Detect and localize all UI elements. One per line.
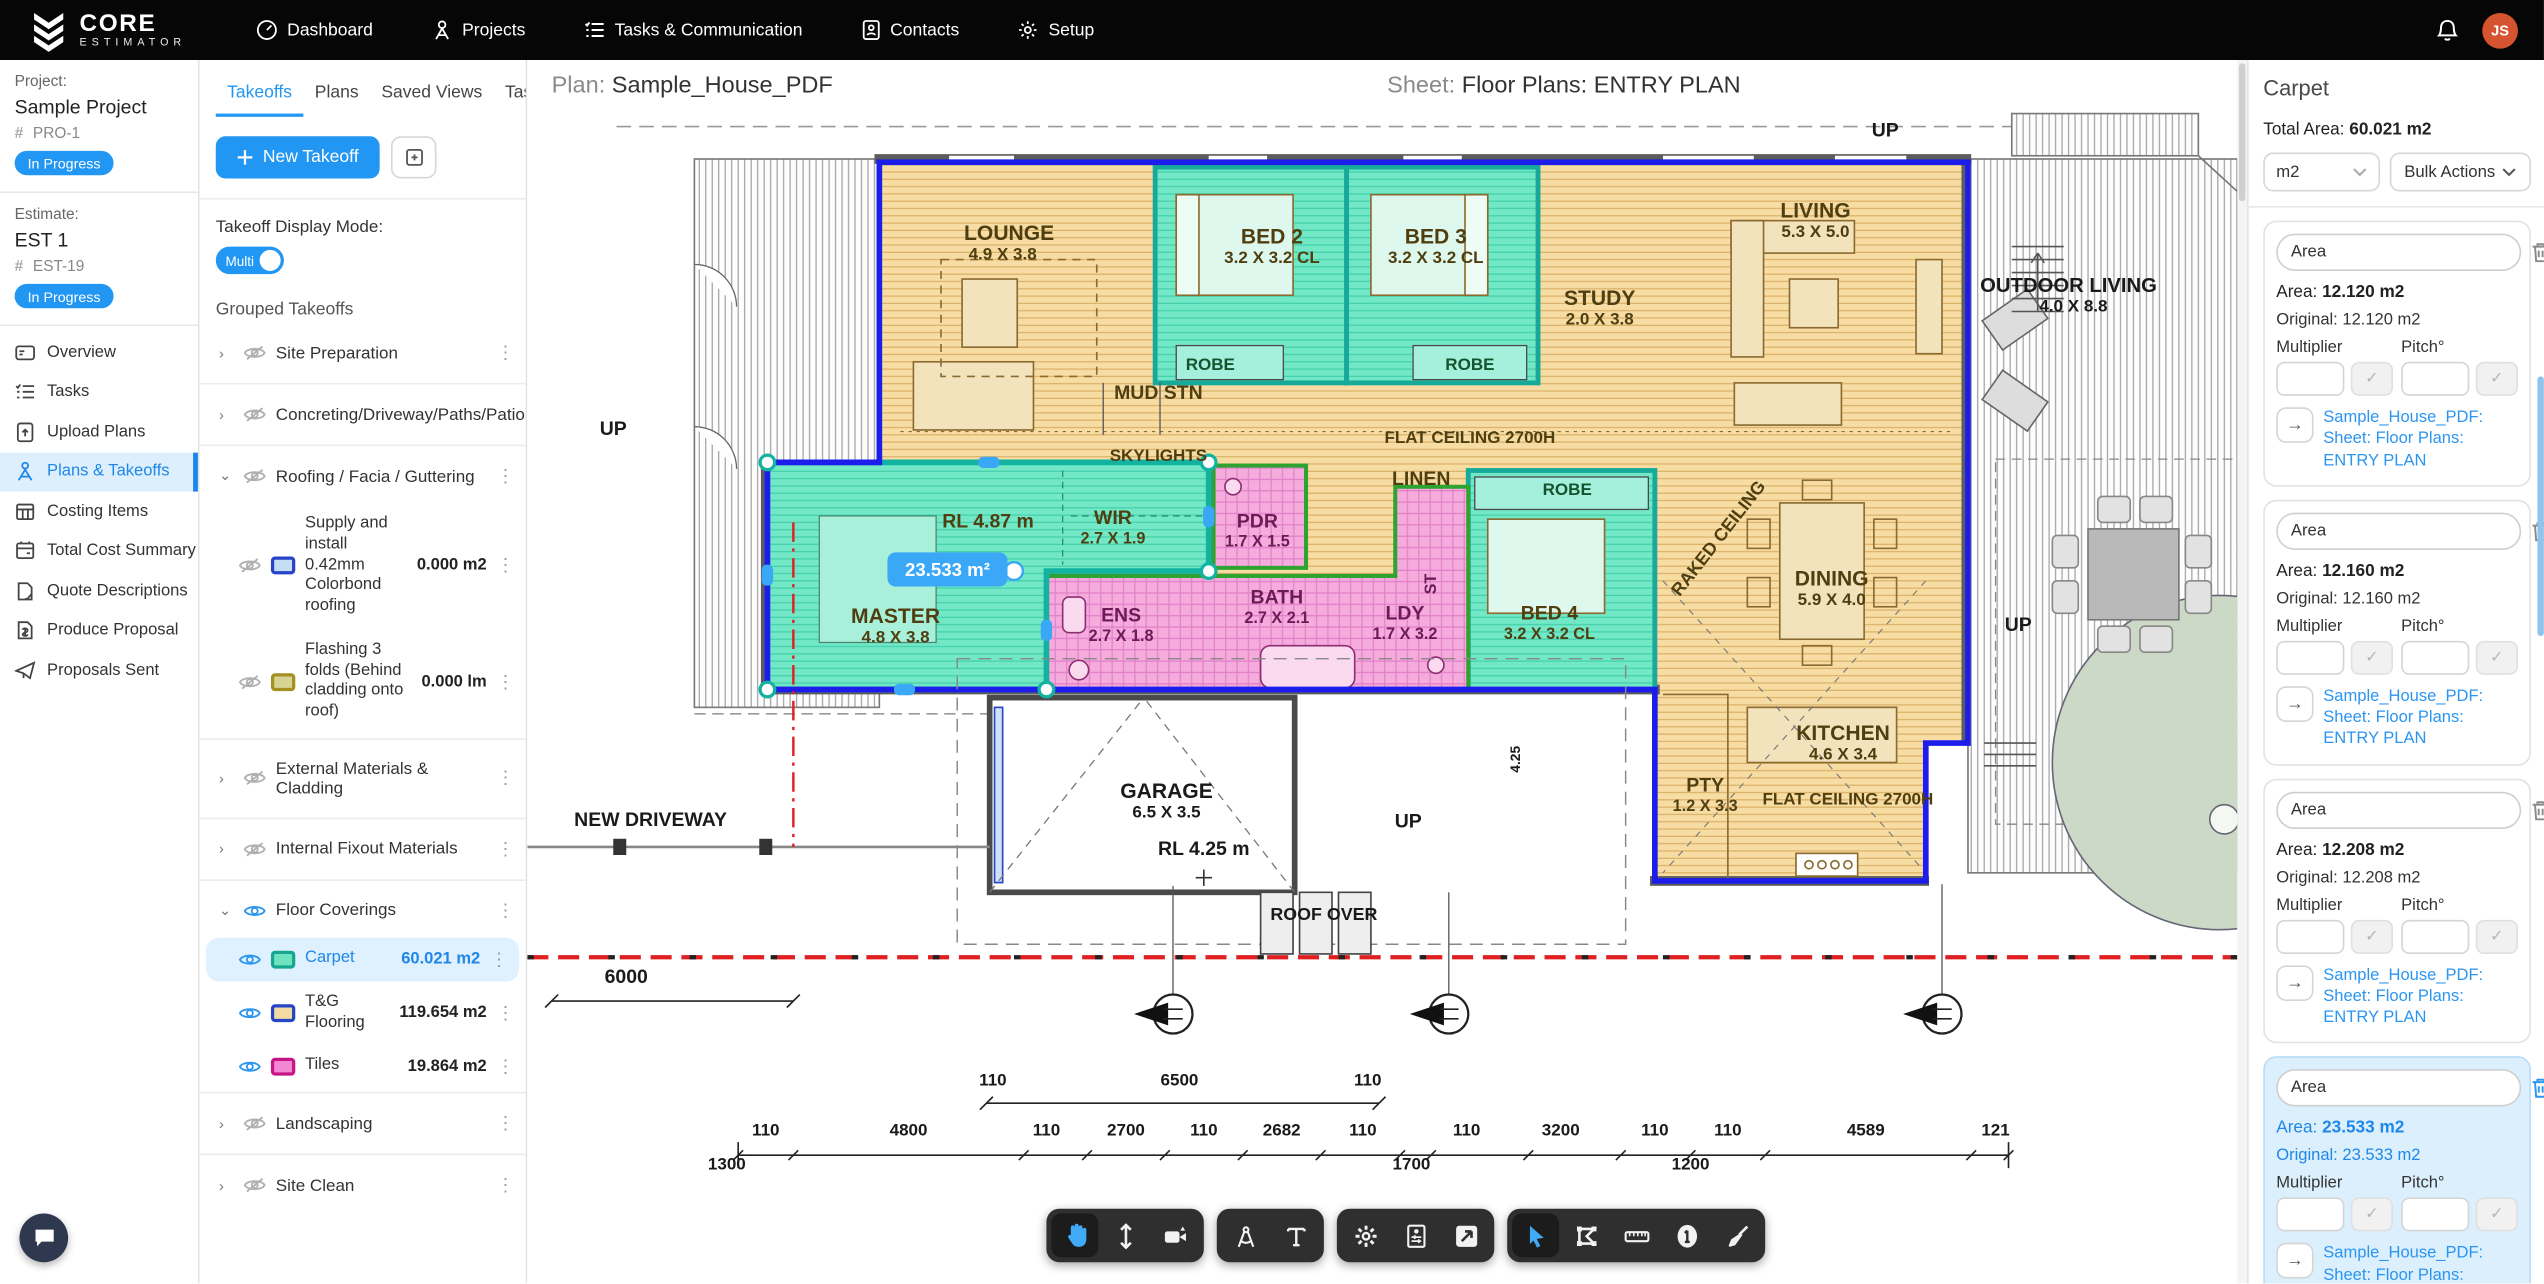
projects-icon: [431, 19, 452, 40]
plan-label: PDR: [1237, 510, 1278, 532]
folder-plus-icon: [403, 148, 424, 167]
plan-label: DINING: [1795, 568, 1869, 591]
nav-tasks-communication[interactable]: Tasks & Communication: [555, 0, 832, 60]
plan-label: RL 4.25 m: [1158, 838, 1250, 860]
plan-label: STUDY: [1564, 287, 1635, 310]
menu-icon: [15, 580, 36, 601]
canvas-scrollbar[interactable]: [2237, 60, 2247, 1283]
multiplier-input[interactable]: [2276, 919, 2344, 953]
top-nav-items: Dashboard Projects Tasks & Communication…: [227, 0, 1123, 60]
takeoff-panel: Takeoffs Plans Saved Views Tasks New Tak…: [200, 60, 528, 1283]
sheet-link[interactable]: Sample_House_PDF: Sheet: Floor Plans: EN…: [2323, 1243, 2518, 1283]
polygon-tool-button[interactable]: [1562, 1214, 1609, 1258]
top-navigation-bar: CORE ESTIMATOR Dashboard Projects Tasks …: [0, 0, 2544, 60]
color-swatch: [271, 557, 295, 575]
plan-label: OUTDOOR LIVING: [1980, 275, 2157, 297]
dimension-lines: [545, 995, 2013, 1169]
plan-label: LIVING: [1780, 199, 1850, 222]
item-menu-icon[interactable]: ⋮: [490, 949, 506, 970]
takeoff-group-concreting-driveway-paths-patios[interactable]: ›Concreting/Driveway/Paths/Patios⋮: [200, 388, 526, 442]
apply-pitch-button[interactable]: ✓: [2476, 919, 2518, 953]
plan-label: UP: [1395, 810, 1422, 832]
item-quantity: 60.021 m2: [401, 950, 480, 968]
plan-label: 110: [1349, 1121, 1376, 1140]
plan-label: 2.7 X 1.8: [1089, 627, 1154, 645]
ruler-button[interactable]: [1613, 1214, 1660, 1258]
eye-hidden-icon[interactable]: [243, 467, 266, 485]
plan-label: BED 4: [1521, 603, 1578, 625]
bulk-actions-label: Bulk Actions: [2404, 163, 2495, 181]
area-line: Area: 12.160 m2: [2276, 561, 2518, 580]
item-menu-icon[interactable]: ⋮: [496, 555, 512, 576]
plan-label: 4.9 X 3.8: [969, 245, 1037, 264]
plan-label: LINEN: [1392, 468, 1450, 490]
sheet-value: Floor Plans: ENTRY PLAN: [1462, 73, 1741, 99]
eye-visible-icon[interactable]: [238, 1004, 261, 1022]
group-name: Roofing / Facia / Guttering: [276, 466, 487, 485]
original-line: Original: 12.208 m2: [2276, 869, 2518, 887]
chevron-right-icon[interactable]: ›: [219, 770, 234, 786]
tab-saved-views[interactable]: Saved Views: [370, 73, 494, 117]
plan-label: 6000: [605, 966, 648, 988]
plan-label: MASTER: [851, 605, 940, 628]
multiplier-input[interactable]: [2276, 362, 2344, 396]
chevron-right-icon[interactable]: ›: [219, 406, 234, 422]
layers-panel-icon: [1403, 1222, 1429, 1248]
vertical-arrows-button[interactable]: [1102, 1214, 1149, 1258]
plan-label: 3.2 X 3.2 CL: [1224, 248, 1320, 267]
notifications-bell-icon[interactable]: [2435, 17, 2459, 43]
plan-label: 3.2 X 3.2 CL: [1388, 248, 1484, 267]
plan-label: 1300: [708, 1155, 746, 1174]
toolbar-group: [1046, 1209, 1203, 1263]
plus-icon: [237, 149, 253, 165]
eye-visible-icon[interactable]: [243, 902, 266, 920]
sidebar-item-label: Overview: [47, 344, 116, 362]
pitch-input[interactable]: [2401, 919, 2469, 953]
plan-label: 1.2 X 3.3: [1673, 797, 1738, 815]
chevron-down-icon[interactable]: ⌄: [219, 902, 234, 920]
vertical-arrows-icon: [1112, 1222, 1138, 1248]
measurement-name-input[interactable]: [2276, 512, 2521, 549]
measurement-tag: 23.533 m²: [887, 552, 1022, 586]
nav-label: Setup: [1049, 20, 1095, 39]
brand-name: CORE: [79, 11, 186, 35]
apply-multiplier-button[interactable]: ✓: [2351, 362, 2393, 396]
expand-icon: [1453, 1222, 1479, 1248]
group-menu-icon[interactable]: ⋮: [496, 342, 512, 363]
apply-multiplier-button[interactable]: ✓: [2351, 640, 2393, 674]
hash-icon: #: [15, 125, 24, 143]
plan-label: MUD STN: [1114, 382, 1203, 404]
contacts-icon: [861, 19, 880, 40]
group-name: Site Preparation: [276, 343, 487, 362]
group-menu-icon[interactable]: ⋮: [496, 838, 512, 859]
app-logo[interactable]: CORE ESTIMATOR: [0, 9, 191, 51]
chevron-right-icon[interactable]: ›: [219, 1177, 234, 1193]
plan-label: LOUNGE: [964, 222, 1054, 245]
takeoff-item-carpet[interactable]: Carpet60.021 m2⋮: [206, 937, 519, 981]
measurement-card: Area: 23.533 m2 Original: 23.533 m2 Mult…: [2263, 1057, 2531, 1284]
plan-label: 121: [1981, 1121, 2009, 1140]
broom-button[interactable]: [1713, 1214, 1760, 1258]
project-code: PRO-1: [33, 125, 80, 143]
tab-tasks[interactable]: Tasks: [494, 73, 528, 117]
takeoff-group-internal-fixout-materials[interactable]: ›Internal Fixout Materials⋮: [200, 822, 526, 876]
takeoff-tabs: Takeoffs Plans Saved Views Tasks: [200, 73, 526, 117]
brand-subtitle: ESTIMATOR: [79, 38, 186, 49]
plan-label: 4800: [890, 1121, 928, 1140]
nav-label: Contacts: [890, 20, 959, 39]
multiplier-input[interactable]: [2276, 640, 2344, 674]
tab-takeoffs[interactable]: Takeoffs: [216, 73, 304, 117]
unit-select[interactable]: m2: [2263, 153, 2380, 192]
menu-icon: [15, 421, 36, 442]
chat-icon: [32, 1227, 56, 1250]
menu-icon: [15, 541, 36, 562]
sidebar-item-proposals-sent[interactable]: Proposals Sent: [0, 651, 198, 691]
multiplier-label: Multiplier: [2276, 339, 2393, 357]
plan-label: 110: [1714, 1121, 1741, 1140]
group-name: Concreting/Driveway/Paths/Patios: [276, 405, 527, 424]
sidebar-item-label: Tasks: [47, 383, 89, 401]
takeoff-item-tiles[interactable]: Tiles19.864 m2⋮: [200, 1045, 526, 1089]
plan-label: 110: [979, 1070, 1006, 1089]
sidebar-item-label: Upload Plans: [47, 423, 145, 441]
project-status-badge: In Progress: [15, 151, 114, 175]
delete-measurement-icon[interactable]: [2531, 242, 2544, 263]
pitch-input[interactable]: [2401, 362, 2469, 396]
item-name: Carpet: [305, 949, 391, 970]
project-name: Sample Project: [15, 96, 184, 119]
measurement-name-input[interactable]: [2276, 791, 2521, 828]
toolbar-group: [1217, 1209, 1324, 1263]
sidebar-item-total-cost-summary[interactable]: Total Cost Summary: [0, 531, 198, 571]
layers-panel-button[interactable]: [1392, 1214, 1439, 1258]
plan-label: 4.25: [1508, 746, 1523, 773]
plan-label: UP: [1872, 119, 1899, 141]
plan-label: 4.6 X 3.4: [1809, 744, 1878, 763]
eye-hidden-icon[interactable]: [243, 406, 266, 424]
sidebar-item-plans-takeoffs[interactable]: Plans & Takeoffs: [0, 452, 198, 492]
sheet-link[interactable]: Sample_House_PDF: Sheet: Floor Plans: EN…: [2323, 686, 2518, 750]
estimate-summary: Estimate: EST 1 #EST-19 In Progress: [0, 193, 198, 326]
toggle-knob: [260, 250, 281, 271]
sidebar-item-label: Total Cost Summary: [47, 542, 196, 560]
display-mode-toggle[interactable]: Multi: [216, 247, 284, 275]
sidebar-item-label: Produce Proposal: [47, 622, 178, 640]
toolbar-group: [1507, 1209, 1765, 1263]
total-area-label: Total Area:: [2263, 120, 2344, 139]
plan-label: RL 4.87 m: [942, 510, 1034, 532]
plan-label: 110: [1453, 1121, 1480, 1140]
camera-button[interactable]: [1152, 1214, 1199, 1258]
sheet-title: Sheet: Floor Plans: ENTRY PLAN: [1387, 73, 1740, 99]
eye-hidden-icon[interactable]: [243, 769, 266, 787]
pitch-label: Pitch°: [2401, 1175, 2518, 1193]
measurement-name-input[interactable]: [2276, 1070, 2521, 1107]
project-sidebar: Project: Sample Project #PRO-1 In Progre…: [0, 60, 200, 1283]
expand-button[interactable]: [1442, 1214, 1489, 1258]
measurement-name-input[interactable]: [2276, 234, 2521, 271]
takeoff-group-roofing-facia-guttering[interactable]: ⌄Roofing / Facia / Guttering⋮: [200, 449, 526, 503]
takeoff-group-floor-coverings[interactable]: ⌄Floor Coverings⋮: [200, 884, 526, 938]
go-to-sheet-button[interactable]: →: [2276, 686, 2313, 722]
takeoff-item-flashing-3-folds-behind-cladding-onto-ro[interactable]: Flashing 3 folds (Behind cladding onto r…: [200, 629, 526, 734]
plan-label: 2700: [1107, 1121, 1145, 1140]
nav-contacts[interactable]: Contacts: [832, 0, 989, 60]
item-name: Flashing 3 folds (Behind cladding onto r…: [305, 640, 412, 723]
apply-pitch-button[interactable]: ✓: [2476, 640, 2518, 674]
group-name: Floor Coverings: [276, 901, 487, 920]
core-estimator-app: CORE ESTIMATOR Dashboard Projects Tasks …: [0, 0, 2544, 1283]
plan-label: 5.3 X 5.0: [1781, 222, 1849, 241]
apply-pitch-button[interactable]: ✓: [2476, 362, 2518, 396]
original-line: Original: 12.120 m2: [2276, 312, 2518, 330]
chevron-down-icon[interactable]: ⌄: [219, 467, 234, 485]
plan-label: GARAGE: [1120, 780, 1213, 803]
plan-label: 6500: [1161, 1070, 1199, 1089]
group-name: Site Clean: [276, 1176, 487, 1195]
multiplier-label: Multiplier: [2276, 896, 2393, 914]
plan-label: ST: [1422, 574, 1440, 595]
plan-label: 3.2 X 3.2 CL: [1504, 625, 1595, 643]
display-mode-label: Takeoff Display Mode:: [200, 203, 526, 247]
toggle-label: Multi: [226, 252, 254, 268]
item-menu-icon[interactable]: ⋮: [496, 1057, 512, 1078]
nav-dashboard[interactable]: Dashboard: [227, 0, 402, 60]
takeoff-group-landscaping[interactable]: ›Landscaping⋮: [200, 1097, 526, 1151]
sidebar-item-label: Quote Descriptions: [47, 582, 188, 600]
unit-select-value: m2: [2276, 163, 2299, 181]
measurement-cards-list: Area: 12.120 m2 Original: 12.120 m2 Mult…: [2263, 221, 2531, 1284]
multiplier-label: Multiplier: [2276, 618, 2393, 636]
plan-label: 4.0 X 8.8: [2039, 297, 2107, 316]
estimate-status-badge: In Progress: [15, 284, 114, 308]
eye-hidden-icon[interactable]: [243, 1177, 266, 1195]
sidebar-menu: OverviewTasksUpload PlansPlans & Takeoff…: [0, 326, 198, 690]
item-menu-icon[interactable]: ⋮: [496, 1003, 512, 1024]
grouped-takeoffs-label: Grouped Takeoffs: [200, 287, 526, 326]
plan-label: 1700: [1393, 1155, 1431, 1174]
plan-label: 4.8 X 3.8: [862, 627, 930, 646]
tasks-icon: [584, 19, 605, 40]
text-tool-button[interactable]: [1272, 1214, 1319, 1258]
nav-projects[interactable]: Projects: [402, 0, 555, 60]
apply-multiplier-button[interactable]: ✓: [2351, 1198, 2393, 1232]
apply-pitch-button[interactable]: ✓: [2476, 1198, 2518, 1232]
group-menu-icon[interactable]: ⋮: [496, 900, 512, 921]
pitch-label: Pitch°: [2401, 339, 2518, 357]
plan-label: 2682: [1263, 1121, 1301, 1140]
panel-scrollbar[interactable]: [2537, 376, 2543, 636]
menu-icon: [15, 461, 36, 482]
menu-icon: [15, 620, 36, 641]
eye-hidden-icon[interactable]: [243, 840, 266, 858]
multiplier-label: Multiplier: [2276, 1175, 2393, 1193]
new-takeoff-button[interactable]: New Takeoff: [216, 136, 380, 178]
canvas-header: Plan: Sample_House_PDF Sheet: Floor Plan…: [527, 60, 2247, 110]
compass-tool-button[interactable]: [1222, 1214, 1269, 1258]
chevron-right-icon[interactable]: ›: [219, 841, 234, 857]
measurement-card: Area: 12.160 m2 Original: 12.160 m2 Mult…: [2263, 499, 2531, 765]
menu-icon: [15, 382, 36, 403]
group-name: External Materials & Cladding: [276, 759, 487, 798]
group-menu-icon[interactable]: ⋮: [496, 466, 512, 487]
plan-label: KITCHEN: [1796, 722, 1890, 745]
hand-tool-button[interactable]: [1051, 1214, 1098, 1258]
chevron-right-icon[interactable]: ›: [219, 345, 234, 361]
item-quantity: 119.654 m2: [399, 1004, 486, 1022]
delete-measurement-icon[interactable]: [2531, 1078, 2544, 1099]
item-name: Tiles: [305, 1057, 398, 1078]
upper-deck: [2012, 114, 2199, 156]
total-area-value: 60.021 m2: [2349, 120, 2431, 139]
takeoff-item-t-g-flooring[interactable]: T&G Flooring119.654 m2⋮: [200, 981, 526, 1045]
go-to-sheet-button[interactable]: →: [2276, 1243, 2313, 1279]
plan-label: UP: [600, 418, 627, 440]
sidebar-item-label: Proposals Sent: [47, 662, 159, 680]
plan-label: LDY: [1386, 603, 1425, 625]
group-name: Landscaping: [276, 1114, 487, 1133]
plan-label: 2.7 X 2.1: [1244, 609, 1309, 627]
item-quantity: 0.000 lm: [421, 673, 486, 691]
core-logo-icon: [29, 9, 68, 51]
area-line: Area: 23.533 m2: [2276, 1118, 2518, 1137]
color-swatch: [271, 1004, 295, 1022]
compass-tool-icon: [1232, 1222, 1258, 1248]
takeoff-group-site-preparation[interactable]: ›Site Preparation⋮: [200, 326, 526, 380]
broom-icon: [1724, 1222, 1750, 1248]
color-swatch: [271, 1058, 295, 1076]
pitch-input[interactable]: [2401, 1198, 2469, 1232]
sidebar-item-quote-descriptions[interactable]: Quote Descriptions: [0, 571, 198, 611]
takeoff-group-site-clean[interactable]: ›Site Clean⋮: [200, 1159, 526, 1213]
sidebar-item-upload-plans[interactable]: Upload Plans: [0, 412, 198, 452]
go-to-sheet-button[interactable]: →: [2276, 407, 2313, 443]
plan-value: Sample_House_PDF: [612, 73, 833, 99]
chevron-down-icon: [2502, 167, 2517, 177]
plan-label: ROBE: [1445, 355, 1494, 374]
sheet-link[interactable]: Sample_House_PDF: Sheet: Floor Plans: EN…: [2323, 407, 2518, 471]
apply-multiplier-button[interactable]: ✓: [2351, 919, 2393, 953]
go-to-sheet-button[interactable]: →: [2276, 965, 2313, 1001]
pitch-input[interactable]: [2401, 640, 2469, 674]
delete-measurement-icon[interactable]: [2531, 799, 2544, 820]
cursor-tool-button[interactable]: [1512, 1214, 1559, 1258]
item-quantity: 0.000 m2: [417, 557, 487, 575]
hash-icon: #: [15, 258, 24, 276]
text-tool-icon: [1283, 1222, 1309, 1248]
total-area: Total Area: 60.021 m2: [2263, 120, 2531, 139]
group-menu-icon[interactable]: ⋮: [496, 768, 512, 789]
sidebar-item-tasks[interactable]: Tasks: [0, 372, 198, 412]
ruler-icon: [1623, 1222, 1649, 1248]
project-summary: Project: Sample Project #PRO-1 In Progre…: [0, 60, 198, 193]
eye-hidden-icon[interactable]: [243, 1115, 266, 1133]
plan-label: ROBE: [1543, 480, 1592, 499]
measurement-card: Area: 12.208 m2 Original: 12.208 m2 Mult…: [2263, 778, 2531, 1044]
plan-label: SKYLIGHTS: [1110, 446, 1207, 465]
pitch-label: Pitch°: [2401, 896, 2518, 914]
chevron-down-icon: [2352, 167, 2367, 177]
drawing-toolbar: [1046, 1209, 1765, 1263]
svg-text:23.533 m²: 23.533 m²: [905, 559, 990, 580]
original-line: Original: 12.160 m2: [2276, 590, 2518, 608]
project-label: Project:: [15, 73, 184, 91]
plan-label: PTY: [1686, 775, 1724, 797]
takeoff-group-external-materials-cladding[interactable]: ›External Materials & Cladding⋮: [200, 743, 526, 814]
floor-plan-drawing[interactable]: 23.533 m² UPLOUNGE4.9 X 3.8BED 23.2 X 3.…: [527, 110, 2237, 1283]
polygon-tool-icon: [1573, 1222, 1599, 1248]
nav-label: Dashboard: [287, 20, 373, 39]
pitch-label: Pitch°: [2401, 618, 2518, 636]
sidebar-item-overview[interactable]: Overview: [0, 333, 198, 373]
gear-icon: [1352, 1222, 1378, 1248]
item-name: Supply and install 0.42mm Colorbond roof…: [305, 514, 407, 617]
sidebar-item-costing-items[interactable]: Costing Items: [0, 492, 198, 532]
eye-hidden-icon[interactable]: [238, 557, 261, 575]
item-quantity: 19.864 m2: [408, 1058, 487, 1076]
sheet-link[interactable]: Sample_House_PDF: Sheet: Floor Plans: EN…: [2323, 965, 2518, 1029]
add-group-button[interactable]: [391, 136, 436, 178]
plan-label: 5.9 X 4.0: [1798, 590, 1866, 609]
multiplier-input[interactable]: [2276, 1198, 2344, 1232]
group-menu-icon[interactable]: ⋮: [496, 1113, 512, 1134]
plan-label: 2.0 X 3.8: [1566, 309, 1634, 328]
plan-label: Plan:: [552, 73, 606, 99]
bulk-actions-button[interactable]: Bulk Actions: [2390, 153, 2531, 192]
color-swatch: [271, 950, 295, 968]
plan-label: 4589: [1847, 1121, 1885, 1140]
hand-tool-icon: [1062, 1222, 1088, 1248]
plan-label: UP: [2005, 614, 2032, 636]
item-menu-icon[interactable]: ⋮: [496, 671, 512, 692]
eye-hidden-icon[interactable]: [243, 344, 266, 362]
plan-label: BED 2: [1241, 225, 1303, 248]
sidebar-item-produce-proposal[interactable]: Produce Proposal: [0, 611, 198, 651]
chevron-right-icon[interactable]: ›: [219, 1116, 234, 1132]
plan-label: ROOF OVER: [1270, 904, 1377, 924]
takeoff-detail-panel: Carpet Total Area: 60.021 m2 m2 Bulk Act…: [2247, 60, 2544, 1283]
eye-visible-icon[interactable]: [238, 1058, 261, 1076]
nav-setup[interactable]: Setup: [988, 0, 1123, 60]
plan-label: 6.5 X 3.5: [1132, 803, 1200, 822]
dashboard-icon: [256, 19, 277, 40]
group-menu-icon[interactable]: ⋮: [496, 1175, 512, 1196]
eye-visible-icon[interactable]: [238, 950, 261, 968]
estimate-label: Estimate:: [15, 206, 184, 224]
plan-label: NEW DRIVEWAY: [574, 809, 727, 831]
plan-label: 110: [1033, 1121, 1060, 1140]
nav-label: Projects: [462, 20, 525, 39]
eye-hidden-icon[interactable]: [238, 673, 261, 691]
plan-title: Plan: Sample_House_PDF: [552, 73, 833, 99]
plan-canvas[interactable]: Plan: Sample_House_PDF Sheet: Floor Plan…: [527, 60, 2247, 1283]
detail-panel-title: Carpet: [2263, 76, 2531, 100]
chat-bubble-button[interactable]: [19, 1214, 68, 1263]
user-avatar[interactable]: JS: [2482, 12, 2518, 48]
sidebar-item-label: Costing Items: [47, 503, 148, 521]
count-one-button[interactable]: [1663, 1214, 1710, 1258]
gear-button[interactable]: [1342, 1214, 1389, 1258]
takeoff-item-supply-and-install-0-42mm-colorbond-roof[interactable]: Supply and install 0.42mm Colorbond roof…: [200, 503, 526, 629]
toolbar-group: [1337, 1209, 1494, 1263]
measurement-card: Area: 12.120 m2 Original: 12.120 m2 Mult…: [2263, 221, 2531, 487]
plan-label: 1.7 X 3.2: [1373, 625, 1438, 643]
tab-plans[interactable]: Plans: [303, 73, 370, 117]
menu-icon: [15, 660, 36, 681]
